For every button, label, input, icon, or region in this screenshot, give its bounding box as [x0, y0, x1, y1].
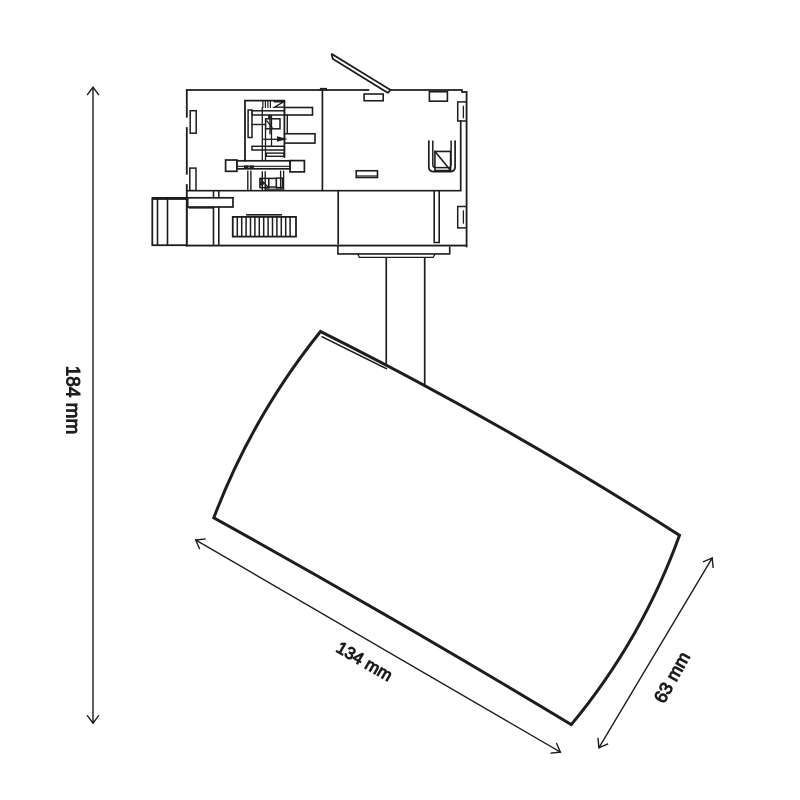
svg-text:134 mm: 134 mm [333, 638, 396, 685]
svg-text:184 mm: 184 mm [61, 366, 82, 435]
svg-text:63 mm: 63 mm [650, 648, 694, 706]
